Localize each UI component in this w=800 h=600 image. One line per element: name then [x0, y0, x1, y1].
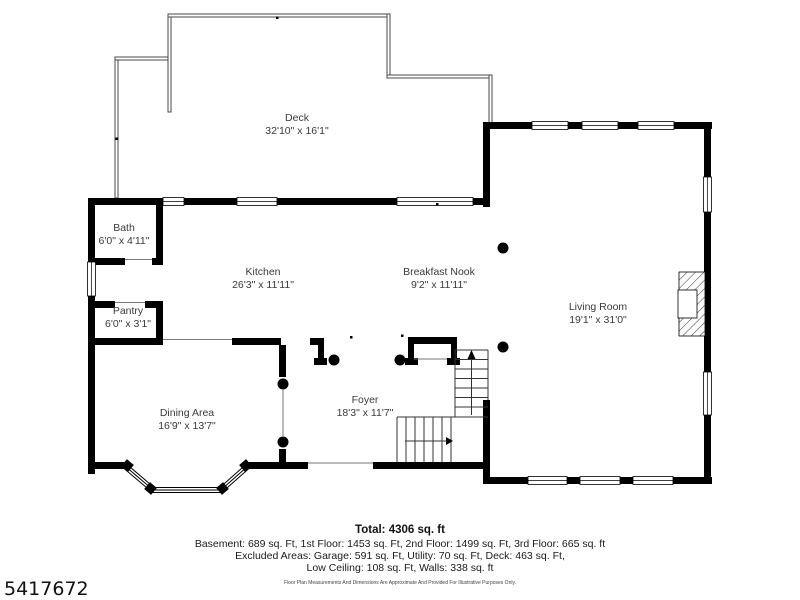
- room-dims-living-room: 19'1" x 31'0": [569, 314, 627, 326]
- room-label-breakfast-nook: Breakfast Nook: [403, 266, 476, 278]
- room-label-foyer: Foyer: [352, 394, 379, 406]
- room-label-deck: Deck: [285, 112, 310, 124]
- room-label-pantry: Pantry: [113, 305, 144, 317]
- staircase: [397, 350, 488, 462]
- firebox: [678, 290, 697, 318]
- room-label-bath: Bath: [113, 222, 135, 234]
- room-label-kitchen: Kitchen: [245, 266, 280, 278]
- disclaimer-text: Floor Plan Measurements And Dimensions A…: [284, 580, 516, 586]
- room-dims-breakfast-nook: 9'2" x 11'11": [411, 279, 467, 291]
- stairs-run-arrow: [405, 437, 453, 445]
- room-dims-deck: 32'10" x 16'1": [265, 125, 329, 137]
- excluded-areas-line: Excluded Areas: Garage: 591 sq. Ft, Util…: [235, 550, 565, 562]
- fireplace: [678, 272, 705, 336]
- floorplan-page: Deck 32'10" x 16'1" Bath 6'0" x 4'11" Ki…: [0, 0, 800, 600]
- room-dims-bath: 6'0" x 4'11": [99, 235, 150, 247]
- room-label-living-room: Living Room: [569, 301, 628, 313]
- bay-window: [121, 459, 252, 495]
- room-dims-pantry: 6'0" x 3'1": [105, 318, 151, 330]
- room-dims-foyer: 18'3" x 11'7": [337, 407, 394, 419]
- total-area: Total: 4306 sq. ft: [355, 524, 445, 536]
- room-dims-kitchen: 26'3" x 11'11": [232, 279, 294, 291]
- room-label-dining-area: Dining Area: [160, 407, 214, 419]
- deck-railing: [115, 14, 492, 198]
- floorplan-drawing: Deck 32'10" x 16'1" Bath 6'0" x 4'11" Ki…: [0, 0, 800, 600]
- floor-areas-line: Basement: 689 sq. Ft, 1st Floor: 1453 sq…: [195, 538, 605, 550]
- listing-id: 5417672: [4, 578, 89, 600]
- low-ceiling-walls-line: Low Ceiling: 108 sq. Ft, Walls: 338 sq. …: [307, 562, 494, 574]
- area-summary: Total: 4306 sq. ft Basement: 689 sq. Ft,…: [195, 524, 605, 586]
- room-dims-dining-area: 16'9" x 13'7": [158, 420, 216, 432]
